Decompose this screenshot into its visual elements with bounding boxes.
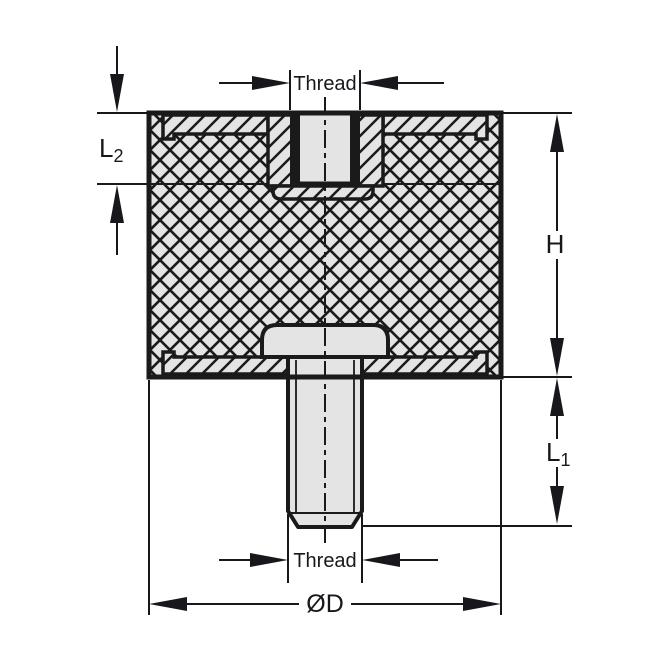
l1-arrow-up <box>550 378 564 416</box>
od-label: ØD <box>306 590 344 618</box>
od-arrow-left <box>149 597 187 611</box>
thread-wall-left <box>290 113 300 186</box>
h-label: H <box>546 229 565 259</box>
thread-wall-right <box>350 113 360 186</box>
thread-top-label: Thread <box>293 73 356 95</box>
h-arrow-down <box>550 338 564 376</box>
h-arrow-up <box>550 114 564 152</box>
dim-l2: L2 <box>97 46 152 255</box>
thread-top-arrow-right <box>252 76 290 90</box>
l1-arrow-down <box>550 486 564 524</box>
l2-label: L2 <box>99 133 123 166</box>
l1-label: L1 <box>546 437 570 470</box>
thread-bottom-label: Thread <box>293 550 356 572</box>
mount-cross-section-drawing: L2 Thread H L1 Thread <box>0 0 670 670</box>
l2-arrow-up <box>110 185 124 223</box>
l2-arrow-down <box>110 74 124 112</box>
thread-bottom-arrow-right <box>250 553 288 567</box>
thread-top-arrow-left <box>360 76 398 90</box>
dim-h: H <box>501 113 572 377</box>
dim-l1: L1 <box>362 378 572 526</box>
dim-thread-top: Thread <box>219 70 444 110</box>
od-arrow-right <box>463 597 501 611</box>
thread-bottom-arrow-left <box>362 553 400 567</box>
